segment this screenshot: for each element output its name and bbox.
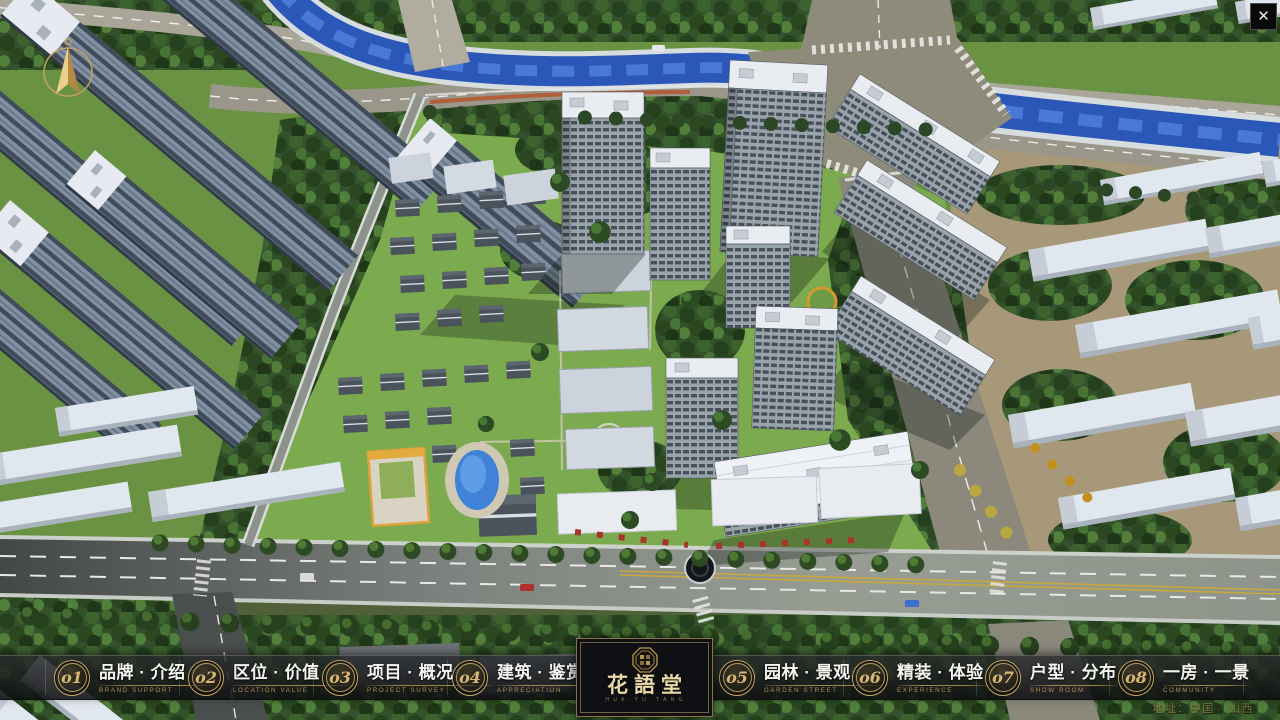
menu-item-label-zh: 区位 · 价值 [233,658,320,683]
menu-item-label-en: SHOW ROOM [1030,687,1085,694]
menu-item-label-zh: 户型 · 分布 [1030,658,1117,683]
menu-item-label-zh: 园林 · 景观 [764,658,851,683]
kindergarten [368,448,429,526]
swimming-pool [445,442,509,518]
menu-item-label-zh: 项目 · 概况 [367,658,454,683]
menu-item-label-zh: 品牌 · 介绍 [99,658,186,683]
gold-divider [1163,685,1250,686]
gold-divider [897,685,987,686]
logo-frame: 花語堂 H U A · Y U · T A N G [580,642,709,713]
menu-item-number-badge: o2 [188,660,224,696]
aerial-masterplan-render[interactable] [0,0,1280,720]
menu-item-interior-experience[interactable]: o6 精装 · 体验EXPERIENCE [852,656,987,699]
close-button[interactable]: ✕ [1250,3,1277,30]
menu-item-floorplans[interactable]: o7 户型 · 分布SHOW ROOM [985,656,1118,699]
menu-item-label-en: APPRECIATION [497,687,562,694]
menu-item-label-zh: 建筑 · 鉴赏 [497,658,584,683]
compass-north-indicator [36,32,100,110]
menu-separator [45,660,46,695]
project-name-latin: H U A · Y U · T A N G [605,697,684,703]
menu-item-label-en: PROJECT SURVEY [367,687,446,694]
menu-item-room-view[interactable]: o8 一房 · 一景COMMUNITY [1118,656,1250,699]
project-logo-panel[interactable]: 花語堂 H U A · Y U · T A N G [576,638,713,717]
menu-item-number-badge: o3 [322,660,358,696]
sales-presentation-window: ✕ o1 品牌 · 介绍BRAND SUPPORT o2 区位 · 价值LOCA… [0,0,1280,720]
menu-item-label-zh: 精装 · 体验 [897,658,984,683]
menu-item-number-badge: o5 [719,660,755,696]
menu-item-label-en: GARDEN STREET [764,687,838,694]
compass-arrow-dark [68,46,80,94]
project-name: 花語堂 [607,673,688,696]
seal-emblem-icon [632,647,658,673]
compass-cap [65,39,71,45]
menu-item-number-badge: o1 [54,660,90,696]
menu-item-label-zh: 一房 · 一景 [1163,658,1250,683]
menu-item-label-en: BRAND SUPPORT [99,687,173,694]
menu-item-number-badge: o4 [452,660,488,696]
menu-item-number-badge: o8 [1118,660,1154,696]
compass-arrow-light [56,46,68,94]
menu-item-label-en: COMMUNITY [1163,687,1216,694]
menu-item-number-badge: o6 [852,660,888,696]
menu-item-number-badge: o7 [985,660,1021,696]
menu-item-label-en: LOCATION VALUE [233,687,308,694]
menu-item-label-en: EXPERIENCE [897,687,953,694]
gold-divider [1030,685,1118,686]
address-text: 地址：中国 · 山西 [1152,700,1254,716]
